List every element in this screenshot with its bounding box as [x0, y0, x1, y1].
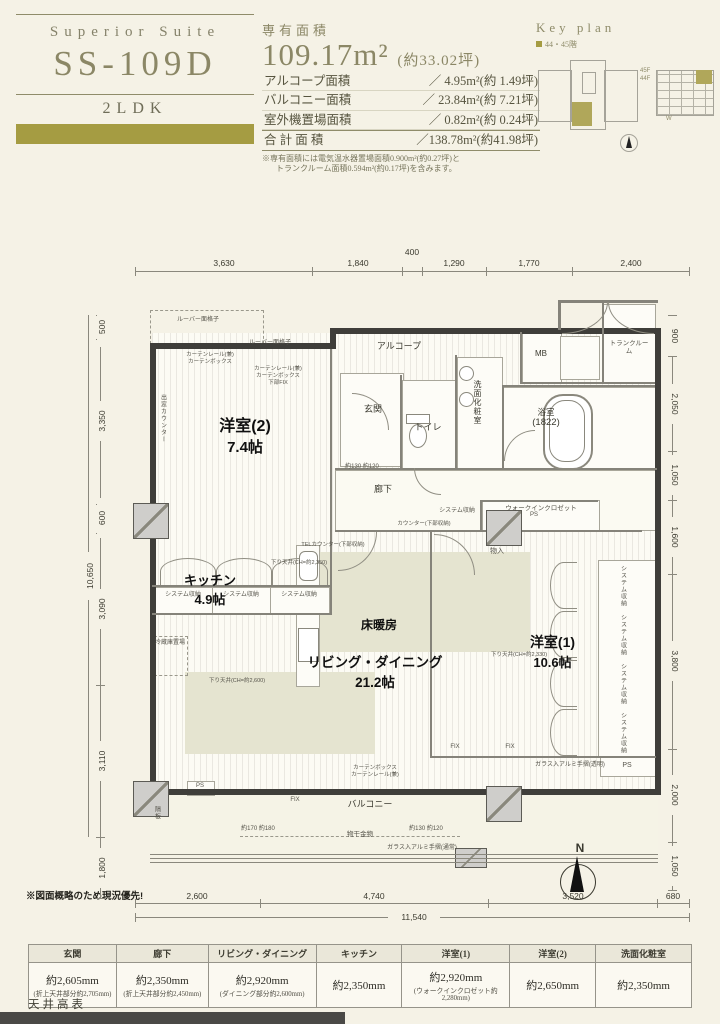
dim-right: 1,050	[670, 455, 680, 495]
dim-right: 2,000	[670, 775, 680, 815]
dim-top: 400	[398, 247, 426, 257]
table-header: リビング・ダイニング	[208, 945, 316, 963]
table-header: 玄関	[29, 945, 117, 963]
dim-note: 約130 約120	[332, 464, 392, 472]
hallway-label: 廊下	[368, 482, 398, 495]
dropped-ceiling-label: 下り天井(CH=約2,600)	[200, 678, 274, 685]
alcove-label: アルコープ	[368, 339, 430, 352]
main-area-tsubo: (約33.02坪)	[397, 53, 480, 69]
ceiling-height: 約2,605mm	[30, 972, 115, 988]
table-header: 洋室(2)	[510, 945, 596, 963]
structural-column	[486, 510, 522, 546]
gold-accent-bar	[16, 124, 254, 144]
dim-right: 2,050	[670, 384, 680, 424]
partition	[430, 532, 432, 758]
key-plan-highlighted-unit	[572, 102, 592, 126]
dim-tick	[486, 267, 487, 276]
partition	[480, 500, 482, 530]
ceiling-note: (折上天井部分約2,450mm)	[118, 988, 207, 998]
divider	[16, 94, 254, 95]
area-info: 専有面積 109.17m² (約33.02坪) アルコープ面積 ／ 4.95m²…	[262, 20, 540, 175]
wall-segment	[150, 343, 156, 795]
dim-tick	[312, 267, 313, 276]
dropped-ceiling-label: 下り天井(CH=約2,330)	[482, 652, 556, 659]
system-storage-label: システム収納	[618, 662, 626, 706]
key-plan-floors: 44・45階	[536, 39, 716, 50]
ceiling-height: 約2,350mm	[318, 977, 401, 993]
partition	[430, 756, 656, 758]
dim-tick	[135, 267, 136, 276]
glass-railing-label: ガラス入アルミ手摺(透明)	[520, 762, 620, 770]
balcony-label: バルコニー	[335, 797, 405, 810]
area-row-value: ／ 4.95m²(約 1.49坪)	[429, 73, 538, 90]
dim-top: 3,630	[200, 258, 248, 268]
bathroom-size-label: (1822)	[522, 417, 570, 428]
dim-tick	[135, 899, 136, 908]
table-cell: 約2,920mm(ウォークインクロゼット約2,280mm)	[402, 963, 510, 1008]
system-storage-label: システム収納	[618, 613, 626, 657]
ceiling-height: 約2,350mm	[118, 972, 207, 988]
main-area-value: 109.17m² (約33.02坪)	[262, 39, 540, 72]
washroom-label: 洗面化粧室	[472, 362, 483, 442]
dim-tick	[135, 913, 136, 922]
partition	[520, 332, 522, 384]
compass-n-label: N	[570, 841, 590, 855]
dim-left: 3,090	[97, 589, 107, 629]
room-name: キッチン	[160, 570, 260, 589]
table-cell: 約2,350mm	[596, 963, 692, 1008]
table-title: 天井高表	[28, 996, 86, 1012]
ceiling-height: 約2,350mm	[597, 977, 690, 993]
elevation-floor-44: 44F	[640, 76, 650, 82]
dim-tick	[668, 574, 677, 575]
gold-square-icon	[536, 41, 542, 47]
priority-note: ※図面概略のため現況優先!	[26, 888, 143, 902]
partition	[400, 375, 402, 470]
table-value-row: 約2,605mm(折上天井部分約2,705mm) 約2,350mm(折上天井部分…	[29, 963, 692, 1008]
area-row-name: 室外機置場面積	[264, 112, 352, 129]
partition-board-label: 隔板	[152, 800, 160, 826]
structural-column	[133, 781, 169, 817]
laundry-hardware-label: 物干金物	[338, 831, 382, 839]
dim-left: 3,110	[97, 741, 107, 781]
key-plan-compass-needle	[626, 136, 632, 148]
area-footnote-line2: トランクルーム面積0.594m²(約0.17坪)を含みます。	[262, 164, 540, 175]
dim-bottom: 4,740	[350, 891, 398, 901]
area-row-value: ／ 0.82m²(約 0.24坪)	[429, 112, 538, 129]
partition	[480, 500, 598, 502]
system-storage-label: システム収納	[618, 711, 626, 755]
fix-window-label: FIX	[440, 744, 470, 752]
dim-tick	[668, 749, 677, 750]
dim-tick	[422, 267, 423, 276]
elevation-floor-45: 45F	[640, 68, 650, 74]
system-storage-label: システム収納	[437, 508, 477, 516]
wall-segment	[655, 328, 661, 795]
room-name: 洋室(2)	[185, 412, 305, 436]
dim-tick	[689, 913, 690, 922]
counter-label: カウンター(下部収納)	[392, 521, 456, 528]
louver-label: ルーバー面格子	[168, 317, 228, 325]
partition	[330, 349, 332, 615]
ceiling-height-table: 玄関 廊下 リビング・ダイニング キッチン 洋室(1) 洋室(2) 洗面化粧室 …	[28, 944, 692, 1008]
area-row-value: ／138.78m²(約41.98坪)	[416, 132, 538, 149]
dim-right: 1,050	[670, 846, 680, 886]
dim-tick	[96, 685, 105, 686]
wall-segment	[558, 300, 561, 330]
table-header: 廊下	[116, 945, 208, 963]
key-plan-elevator-core	[582, 72, 596, 94]
dim-line	[135, 903, 690, 904]
divider	[16, 14, 254, 15]
key-plan-title: Key plan	[536, 20, 716, 36]
room-label-living: リビング・ダイニング 21.2帖	[285, 651, 465, 691]
structural-column	[133, 503, 169, 539]
curtain-box-label: カーテンボックス	[178, 359, 242, 366]
wall-segment	[150, 789, 661, 795]
ceiling-height: 約2,920mm	[403, 969, 508, 985]
room-label-bed2: 洋室(2) 7.4帖	[185, 412, 305, 457]
unit-number: SS-109D	[16, 44, 254, 84]
dim-bottom: 3,520	[549, 891, 597, 901]
dim-top: 1,290	[430, 258, 478, 268]
partition	[522, 382, 655, 384]
system-storage-label: システム収納	[156, 592, 210, 600]
ps-label: PS	[524, 512, 544, 520]
dim-bottom-total: 11,540	[388, 912, 440, 922]
ps-label: PS	[188, 783, 212, 791]
area-row-name: アルコープ面積	[264, 73, 350, 90]
dim-left: 600	[97, 498, 107, 538]
closet-door-arc	[550, 709, 577, 756]
dim-bottom: 680	[657, 891, 689, 901]
system-storage-label: システム収納	[272, 592, 326, 600]
table-cell: 約2,350mm(折上天井部分約2,450mm)	[116, 963, 208, 1008]
elevation-direction-w: W	[666, 116, 672, 122]
dim-top: 2,400	[607, 258, 655, 268]
dim-tick	[689, 899, 690, 908]
area-row-value: ／ 23.84m²(約 7.21坪)	[422, 92, 538, 109]
key-plan-building-wing	[538, 70, 572, 122]
room-size: 7.4帖	[185, 436, 305, 457]
glass-railing-label: ガラス入アルミ手摺(通常)	[372, 845, 472, 853]
dim-top: 1,840	[334, 258, 382, 268]
series-name: Superior Suite	[16, 24, 254, 41]
table-cell: 約2,650mm	[510, 963, 596, 1008]
unit-title-block: Superior Suite SS-109D 2LDK	[16, 8, 254, 144]
dim-note: 約170 約180	[228, 826, 288, 834]
area-row-outdoor-unit: 室外機置場面積 ／ 0.82m²(約 0.24坪)	[262, 111, 540, 131]
ceiling-height: 約2,920mm	[210, 972, 315, 988]
bay-window-counter-label: 出窓カウンター	[158, 385, 166, 451]
room-label-kitchen: キッチン 4.9帖	[160, 570, 260, 608]
curtain-rail-label: カーテンレール(兼)	[340, 772, 410, 779]
area-row-balcony: バルコニー面積 ／ 23.84m²(約 7.21坪)	[262, 91, 540, 111]
dim-bottom: 2,600	[173, 891, 221, 901]
unit-layout: 2LDK	[16, 100, 254, 118]
room-name: リビング・ダイニング	[285, 651, 465, 671]
refrigerator-label: 冷蔵庫置場	[154, 640, 186, 648]
louver-label: ルーバー面格子	[240, 340, 300, 348]
dim-left: 3,350	[97, 401, 107, 441]
main-area-number: 109.17m²	[262, 37, 389, 72]
system-storage-label: システム収納	[214, 592, 268, 600]
storage-label: 物入	[484, 548, 510, 557]
area-footnote: ※専有面積には電気温水器置場面積0.900m²(約0.27坪)と トランクルーム…	[262, 154, 540, 176]
dim-left: 500	[97, 307, 107, 347]
dim-note: 約130 約120	[396, 826, 456, 834]
partition	[152, 613, 332, 615]
ceiling-note: (ウォークインクロゼット約2,280mm)	[403, 985, 508, 1002]
dim-line	[135, 271, 690, 272]
table-cell: 約2,350mm	[316, 963, 402, 1008]
dim-tick	[402, 267, 403, 276]
key-plan-floors-text: 44・45階	[545, 40, 577, 49]
dim-tick	[260, 899, 261, 908]
dim-tick	[96, 898, 105, 899]
wall-segment	[330, 328, 526, 334]
dim-right: 3,800	[670, 641, 680, 681]
meter-box-cell	[522, 332, 562, 384]
curtain-rail-label: カーテンレール(兼)	[246, 366, 310, 373]
area-row-total: 合 計 面 積 ／138.78m²(約41.98坪)	[262, 130, 540, 151]
ceiling-height: 約2,650mm	[511, 977, 594, 993]
area-row-name: バルコニー面積	[264, 92, 351, 109]
closet-door-arc	[550, 562, 577, 609]
dim-tick	[572, 267, 573, 276]
dim-tick	[96, 837, 105, 838]
page-bottom-band	[0, 1012, 345, 1024]
system-storage-label: システム収納	[618, 564, 626, 608]
key-plan-building-wing	[604, 70, 638, 122]
dim-tick	[668, 356, 677, 357]
structural-column	[486, 786, 522, 822]
floorplan-page: Superior Suite SS-109D 2LDK 専有面積 109.17m…	[0, 0, 720, 1024]
tel-counter-label: TELカウンター(下部収納)	[300, 542, 366, 549]
water-heater-cell	[560, 336, 600, 380]
dim-tick	[668, 451, 677, 452]
dim-tick	[488, 899, 489, 908]
dim-top: 1,770	[505, 258, 553, 268]
louver-grille-zone	[150, 310, 264, 344]
table-header: キッチン	[316, 945, 402, 963]
partition	[455, 355, 457, 470]
key-plan: Key plan 44・45階 45F 44F W	[536, 20, 716, 160]
curtain-fix-label: 下部FIX	[246, 380, 310, 387]
room-size: 21.2帖	[285, 671, 465, 691]
table-header: 洋室(1)	[402, 945, 510, 963]
dim-right: 1,600	[670, 517, 680, 557]
area-row-name: 合 計 面 積	[264, 132, 323, 149]
toilet-label: トイレ	[408, 420, 448, 433]
trunk-room-label: トランクルーム	[608, 340, 650, 356]
ceiling-note: (ダイニング部分約2,600mm)	[210, 988, 315, 998]
partition	[502, 385, 655, 387]
dim-tick	[689, 267, 690, 276]
curtain-box-label: カーテンボックス	[246, 373, 310, 380]
table-header: 洗面化粧室	[596, 945, 692, 963]
dim-left-lower: 1,800	[97, 848, 107, 888]
curtain-rail-label: カーテンレール(兼)	[178, 352, 242, 359]
elevation-highlight-cell	[696, 70, 712, 84]
genkan-label: 玄関	[358, 402, 388, 415]
area-row-alcove: アルコープ面積 ／ 4.95m²(約 1.49坪)	[262, 72, 540, 92]
dropped-ceiling-label: 下り天井(CH=約2,350)	[262, 560, 336, 567]
table-header-row: 玄関 廊下 リビング・ダイニング キッチン 洋室(1) 洋室(2) 洗面化粧室	[29, 945, 692, 963]
curtain-box-label: カーテンボックス	[340, 765, 410, 772]
dim-left-total: 10,650	[85, 552, 95, 600]
area-footnote-line1: ※専有面積には電気温水器置場面積0.900m²(約0.27坪)と	[262, 154, 540, 165]
compass-needle-icon	[570, 856, 584, 892]
dim-tick	[668, 842, 677, 843]
fix-window-label: FIX	[495, 744, 525, 752]
dim-tick	[668, 500, 677, 501]
table-cell: 約2,920mm(ダイニング部分約2,600mm)	[208, 963, 316, 1008]
fix-window-label: FIX	[280, 797, 310, 805]
meter-box-label: MB	[526, 349, 556, 358]
room-name: 洋室(1)	[495, 632, 610, 652]
floor-heating-label: 床暖房	[348, 616, 410, 633]
dim-right: 900	[670, 316, 680, 356]
